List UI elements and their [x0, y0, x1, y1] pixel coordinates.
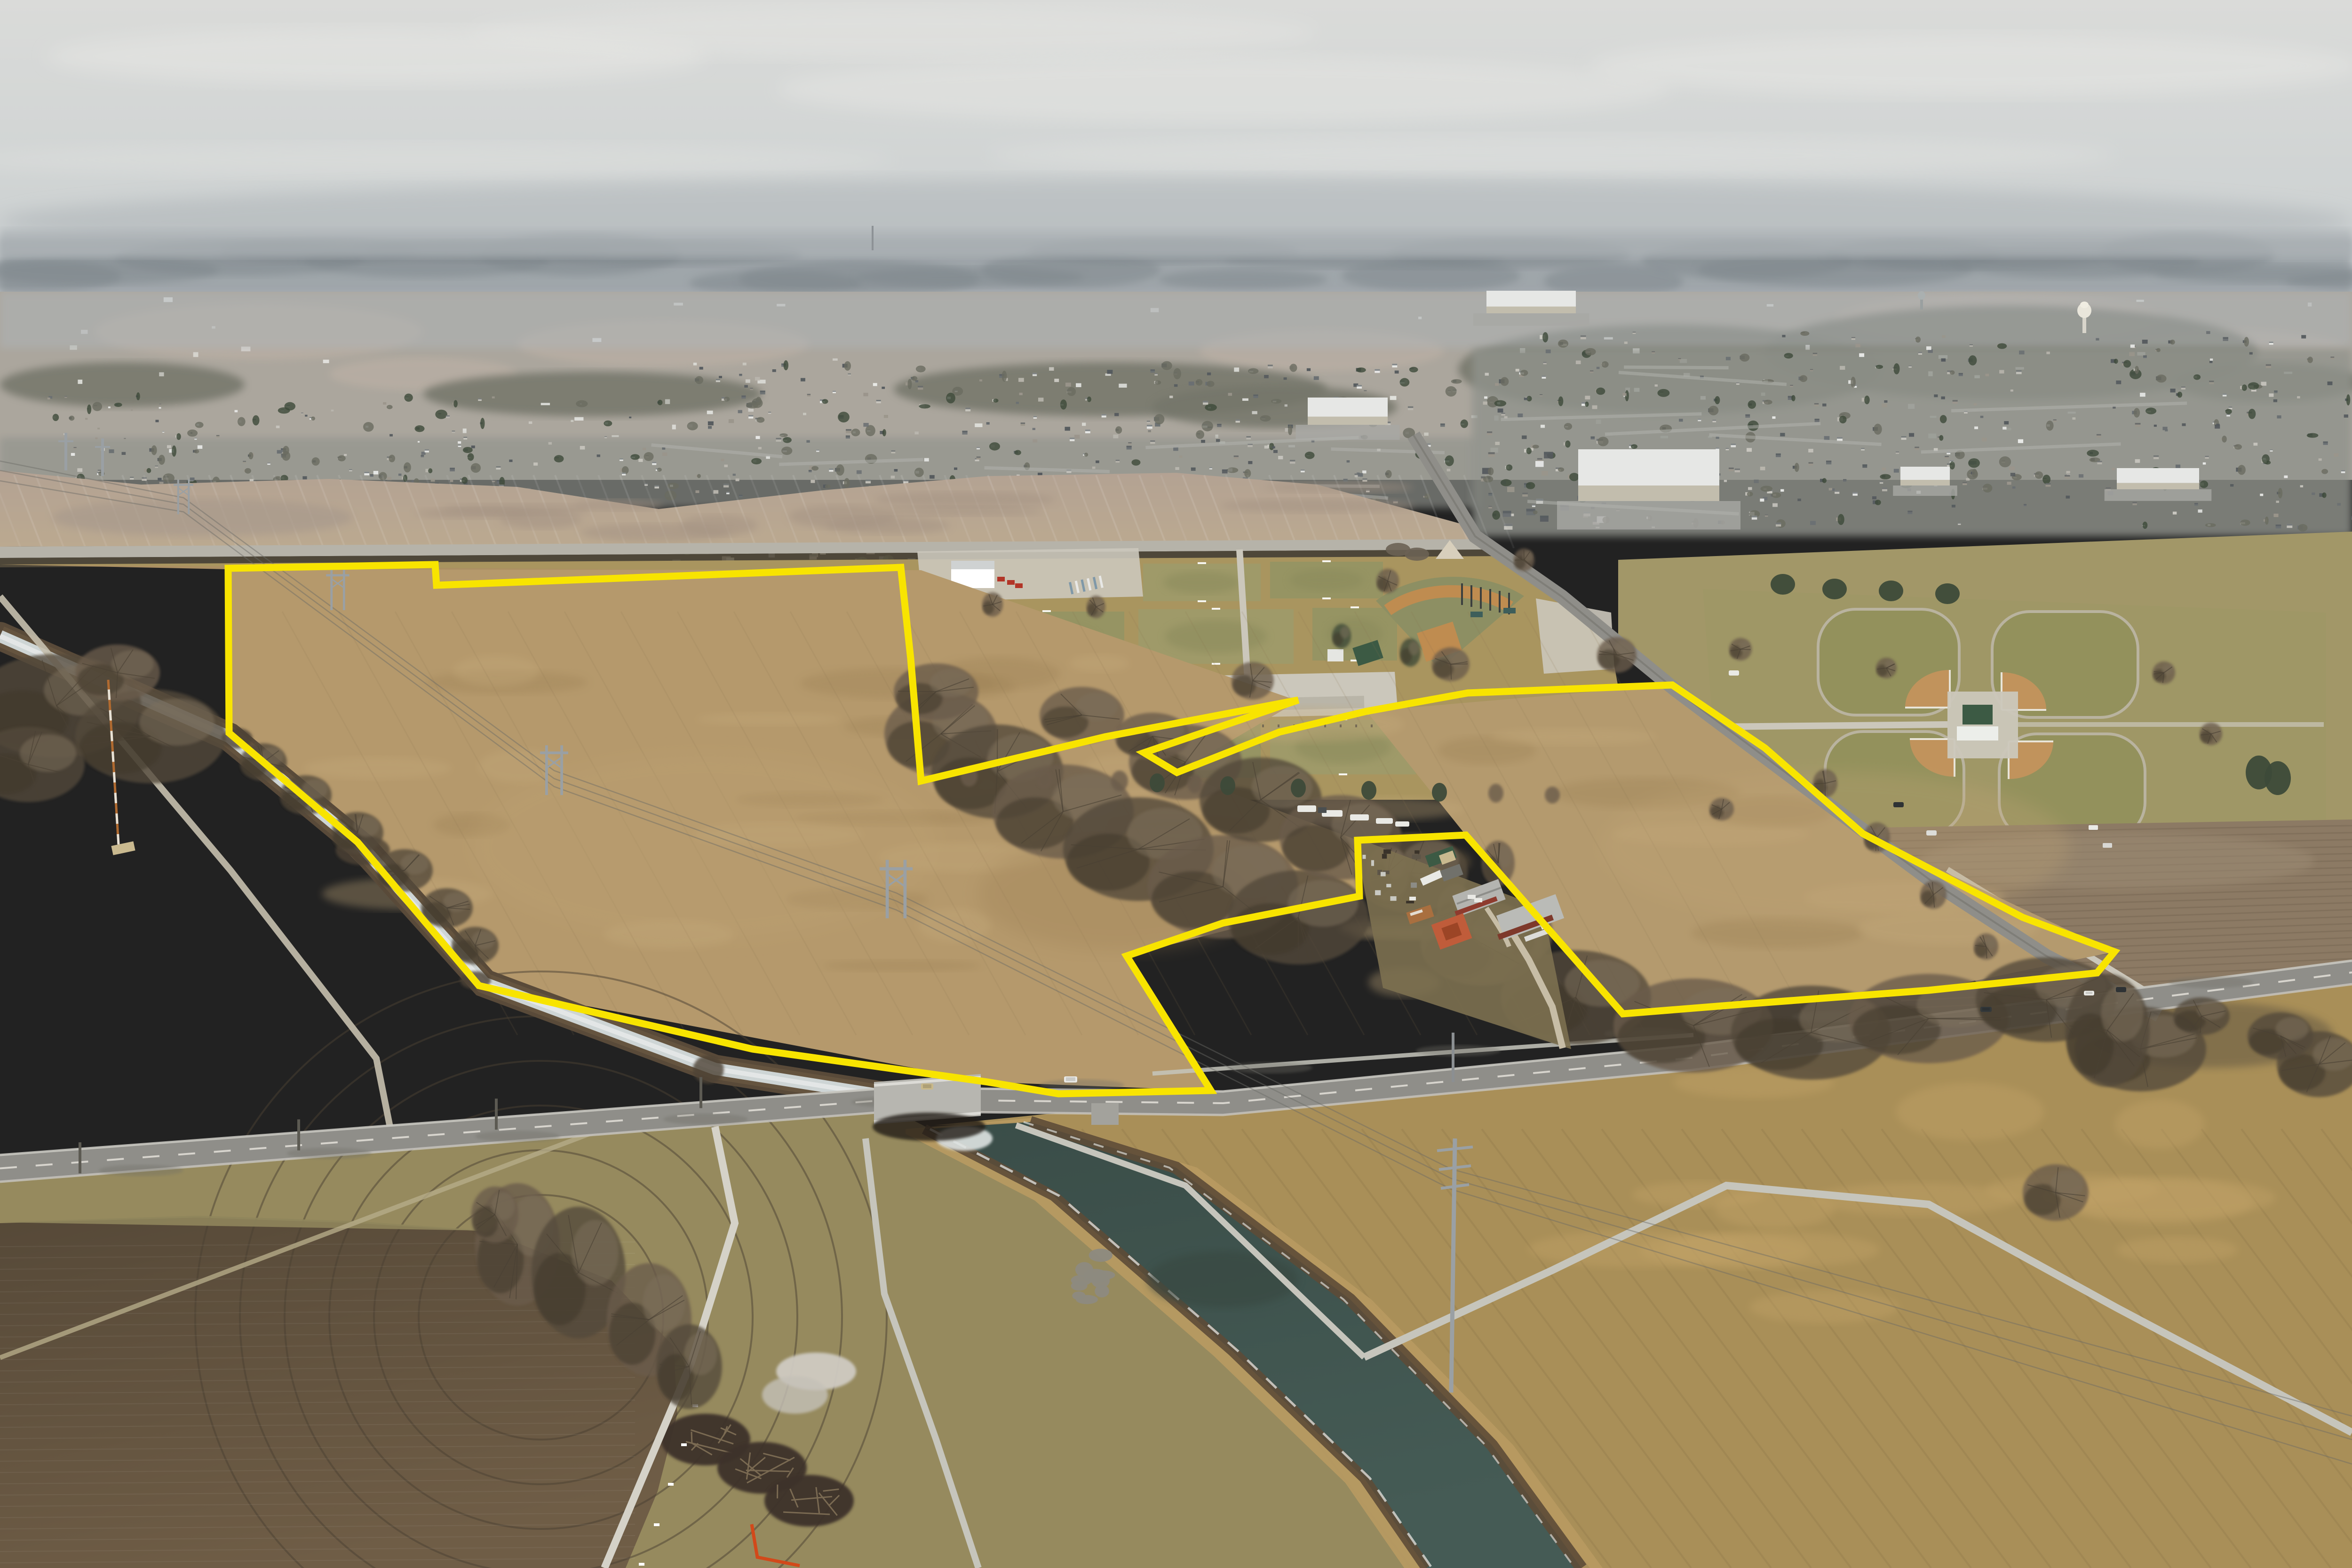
bare-tree-cluster: [656, 1324, 722, 1409]
bare-tree-cluster: [1432, 647, 1470, 681]
aerial-photo: [0, 0, 2352, 1568]
bare-tree-cluster: [75, 645, 160, 701]
bare-tree-cluster: [1597, 637, 1637, 673]
evergreen-tree: [1400, 638, 1421, 667]
bare-tree-cluster: [1514, 549, 1534, 571]
bare-tree-cluster: [75, 689, 226, 783]
bare-tree-cluster: [894, 663, 978, 720]
bare-tree-cluster: [1376, 569, 1399, 593]
bare-tree-cluster: [2173, 997, 2230, 1035]
aerial-photo-canvas: [0, 0, 2352, 1568]
bare-tree-cluster: [1709, 798, 1734, 820]
bare-tree-cluster: [1232, 662, 1274, 700]
bare-tree-cluster: [2153, 661, 2175, 684]
bare-tree-cluster: [1087, 596, 1105, 618]
bare-tree-cluster: [2023, 1164, 2089, 1221]
bare-tree-cluster: [982, 592, 1003, 617]
bare-tree-cluster: [1876, 658, 1897, 678]
bare-tree-cluster: [2248, 1012, 2313, 1059]
bare-tree-cluster: [1974, 933, 1998, 960]
bare-tree-cluster: [2200, 723, 2222, 745]
bare-tree-cluster: [1920, 881, 1947, 909]
evergreen-tree: [1332, 624, 1351, 648]
bare-tree-cluster: [1729, 638, 1752, 661]
bare-tree-cluster: [471, 1186, 518, 1243]
bare-tree-cluster: [2065, 974, 2150, 1087]
